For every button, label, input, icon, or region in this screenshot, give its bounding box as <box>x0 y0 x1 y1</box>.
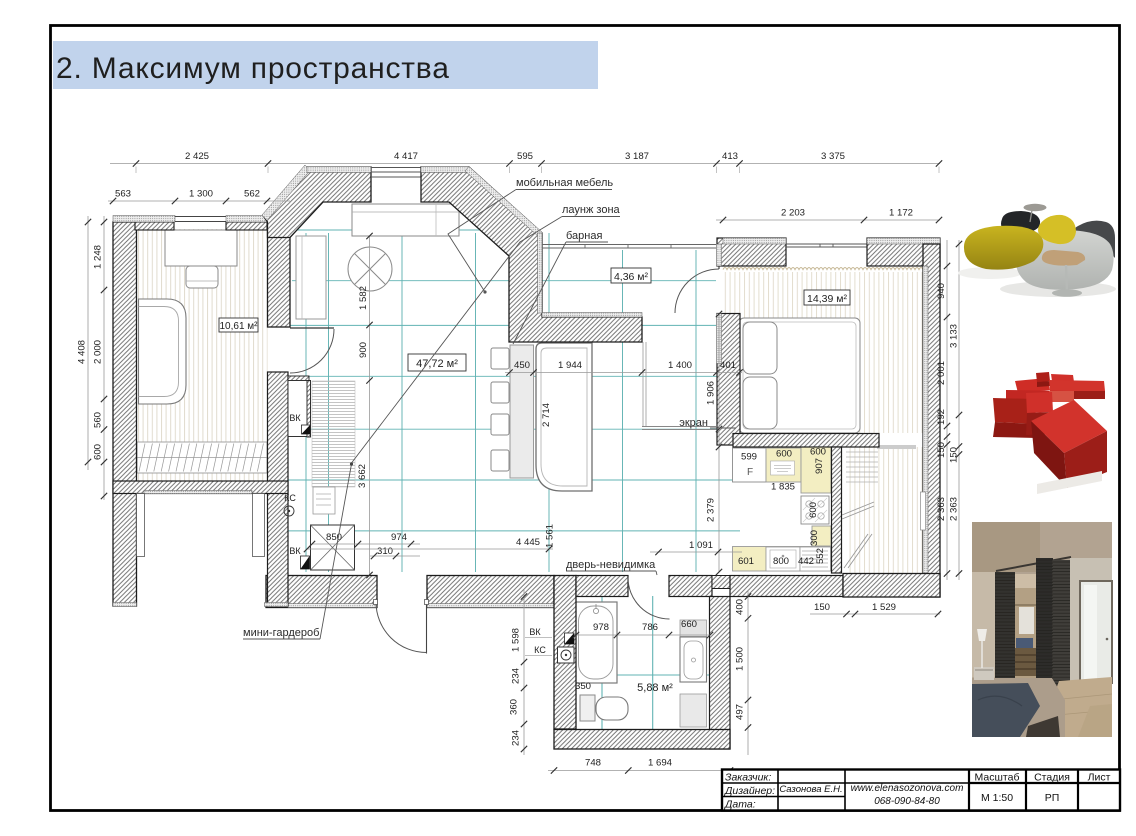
svg-text:552: 552 <box>815 548 826 564</box>
svg-text:1 561: 1 561 <box>545 524 556 548</box>
svg-text:150: 150 <box>949 447 960 463</box>
svg-text:2 363: 2 363 <box>936 497 947 521</box>
svg-text:3 662: 3 662 <box>357 464 368 488</box>
svg-text:234: 234 <box>511 729 522 746</box>
svg-text:Лист: Лист <box>1088 772 1111 784</box>
svg-text:786: 786 <box>642 622 658 633</box>
svg-text:800: 800 <box>773 556 789 567</box>
svg-text:660: 660 <box>681 619 697 630</box>
svg-text:экран: экран <box>679 417 708 429</box>
svg-text:1 300: 1 300 <box>189 189 213 200</box>
svg-text:1 172: 1 172 <box>889 208 913 219</box>
svg-text:563: 563 <box>115 189 131 200</box>
svg-text:2 425: 2 425 <box>185 151 209 162</box>
svg-text:401: 401 <box>720 360 736 371</box>
svg-text:2 379: 2 379 <box>706 498 717 522</box>
svg-text:900: 900 <box>358 342 369 358</box>
svg-text:2 363: 2 363 <box>949 497 960 521</box>
svg-text:ВК: ВК <box>529 627 541 637</box>
svg-text:360: 360 <box>509 699 520 715</box>
svg-text:310: 310 <box>377 546 393 557</box>
svg-text:350: 350 <box>575 681 591 692</box>
svg-text:442: 442 <box>798 556 814 567</box>
svg-text:Сазонова Е.Н.: Сазонова Е.Н. <box>779 784 842 795</box>
svg-text:3 375: 3 375 <box>821 151 845 162</box>
svg-text:1 906: 1 906 <box>706 381 717 405</box>
svg-text:www.elenasozonova.com: www.elenasozonova.com <box>851 783 964 794</box>
svg-text:1 944: 1 944 <box>558 360 583 371</box>
svg-text:КС: КС <box>284 493 296 503</box>
svg-text:560: 560 <box>93 412 104 428</box>
svg-text:234: 234 <box>511 667 522 684</box>
svg-text:600: 600 <box>810 447 826 458</box>
svg-text:150: 150 <box>814 602 830 613</box>
svg-text:Стадия: Стадия <box>1034 772 1070 784</box>
svg-text:600: 600 <box>808 502 819 518</box>
svg-text:лаунж зона: лаунж зона <box>562 204 621 216</box>
svg-text:850: 850 <box>326 532 342 543</box>
svg-text:600: 600 <box>93 444 104 460</box>
svg-text:КС: КС <box>534 645 546 655</box>
svg-text:дверь-невидимка: дверь-невидимка <box>566 559 656 571</box>
svg-text:барная: барная <box>566 230 602 242</box>
svg-text:ВК: ВК <box>289 546 301 556</box>
svg-text:300: 300 <box>809 530 820 546</box>
svg-text:4,36 м²: 4,36 м² <box>614 271 649 283</box>
svg-text:Масштаб: Масштаб <box>975 772 1020 784</box>
svg-text:907: 907 <box>814 458 825 474</box>
svg-text:47,72 м²: 47,72 м² <box>416 358 458 370</box>
svg-text:599: 599 <box>741 452 757 463</box>
svg-text:748: 748 <box>585 758 601 769</box>
svg-text:3 133: 3 133 <box>949 324 960 348</box>
svg-text:1 248: 1 248 <box>93 245 104 269</box>
svg-text:562: 562 <box>244 189 260 200</box>
svg-text:Дата:: Дата: <box>724 799 756 811</box>
svg-text:413: 413 <box>722 151 738 162</box>
svg-text:М 1:50: М 1:50 <box>981 792 1013 804</box>
svg-text:1 529: 1 529 <box>872 602 896 613</box>
svg-text:974: 974 <box>391 532 408 543</box>
svg-text:192: 192 <box>936 409 947 425</box>
svg-text:1 694: 1 694 <box>648 758 673 769</box>
svg-text:600: 600 <box>776 449 792 460</box>
svg-text:4 408: 4 408 <box>77 340 88 364</box>
svg-text:2 001: 2 001 <box>936 361 947 385</box>
svg-text:4 445: 4 445 <box>516 537 540 548</box>
svg-text:3 187: 3 187 <box>625 151 649 162</box>
svg-text:1 091: 1 091 <box>689 540 713 551</box>
svg-text:068-090-84-80: 068-090-84-80 <box>874 796 940 807</box>
svg-text:497: 497 <box>735 704 746 720</box>
svg-text:2. Максимум пространства: 2. Максимум пространства <box>56 52 450 85</box>
svg-text:1 500: 1 500 <box>735 647 746 671</box>
svg-text:2 714: 2 714 <box>541 402 552 427</box>
svg-text:1 400: 1 400 <box>668 360 692 371</box>
svg-text:РП: РП <box>1045 792 1060 804</box>
svg-text:595: 595 <box>517 151 533 162</box>
svg-text:мобильная мебель: мобильная мебель <box>516 177 613 189</box>
svg-text:601: 601 <box>738 556 754 567</box>
svg-text:Дизайнер:: Дизайнер: <box>724 785 775 797</box>
svg-text:ВК: ВК <box>289 413 301 423</box>
svg-text:1 835: 1 835 <box>771 482 795 493</box>
svg-text:940: 940 <box>936 283 947 299</box>
svg-text:14,39 м²: 14,39 м² <box>807 293 847 305</box>
svg-text:5,88 м²: 5,88 м² <box>637 682 673 694</box>
svg-text:Заказчик:: Заказчик: <box>725 772 771 784</box>
svg-text:150: 150 <box>936 442 947 458</box>
svg-text:400: 400 <box>735 599 746 615</box>
svg-text:1 582: 1 582 <box>358 286 369 310</box>
svg-text:2 203: 2 203 <box>781 208 805 219</box>
svg-text:2 000: 2 000 <box>93 340 104 364</box>
svg-text:10,61 м²: 10,61 м² <box>219 321 258 332</box>
svg-text:1 598: 1 598 <box>511 628 522 652</box>
svg-text:4 417: 4 417 <box>394 151 418 162</box>
svg-text:450: 450 <box>514 360 530 371</box>
svg-text:978: 978 <box>593 622 609 633</box>
svg-text:мини-гардероб: мини-гардероб <box>243 627 319 639</box>
svg-text:F: F <box>747 467 753 478</box>
